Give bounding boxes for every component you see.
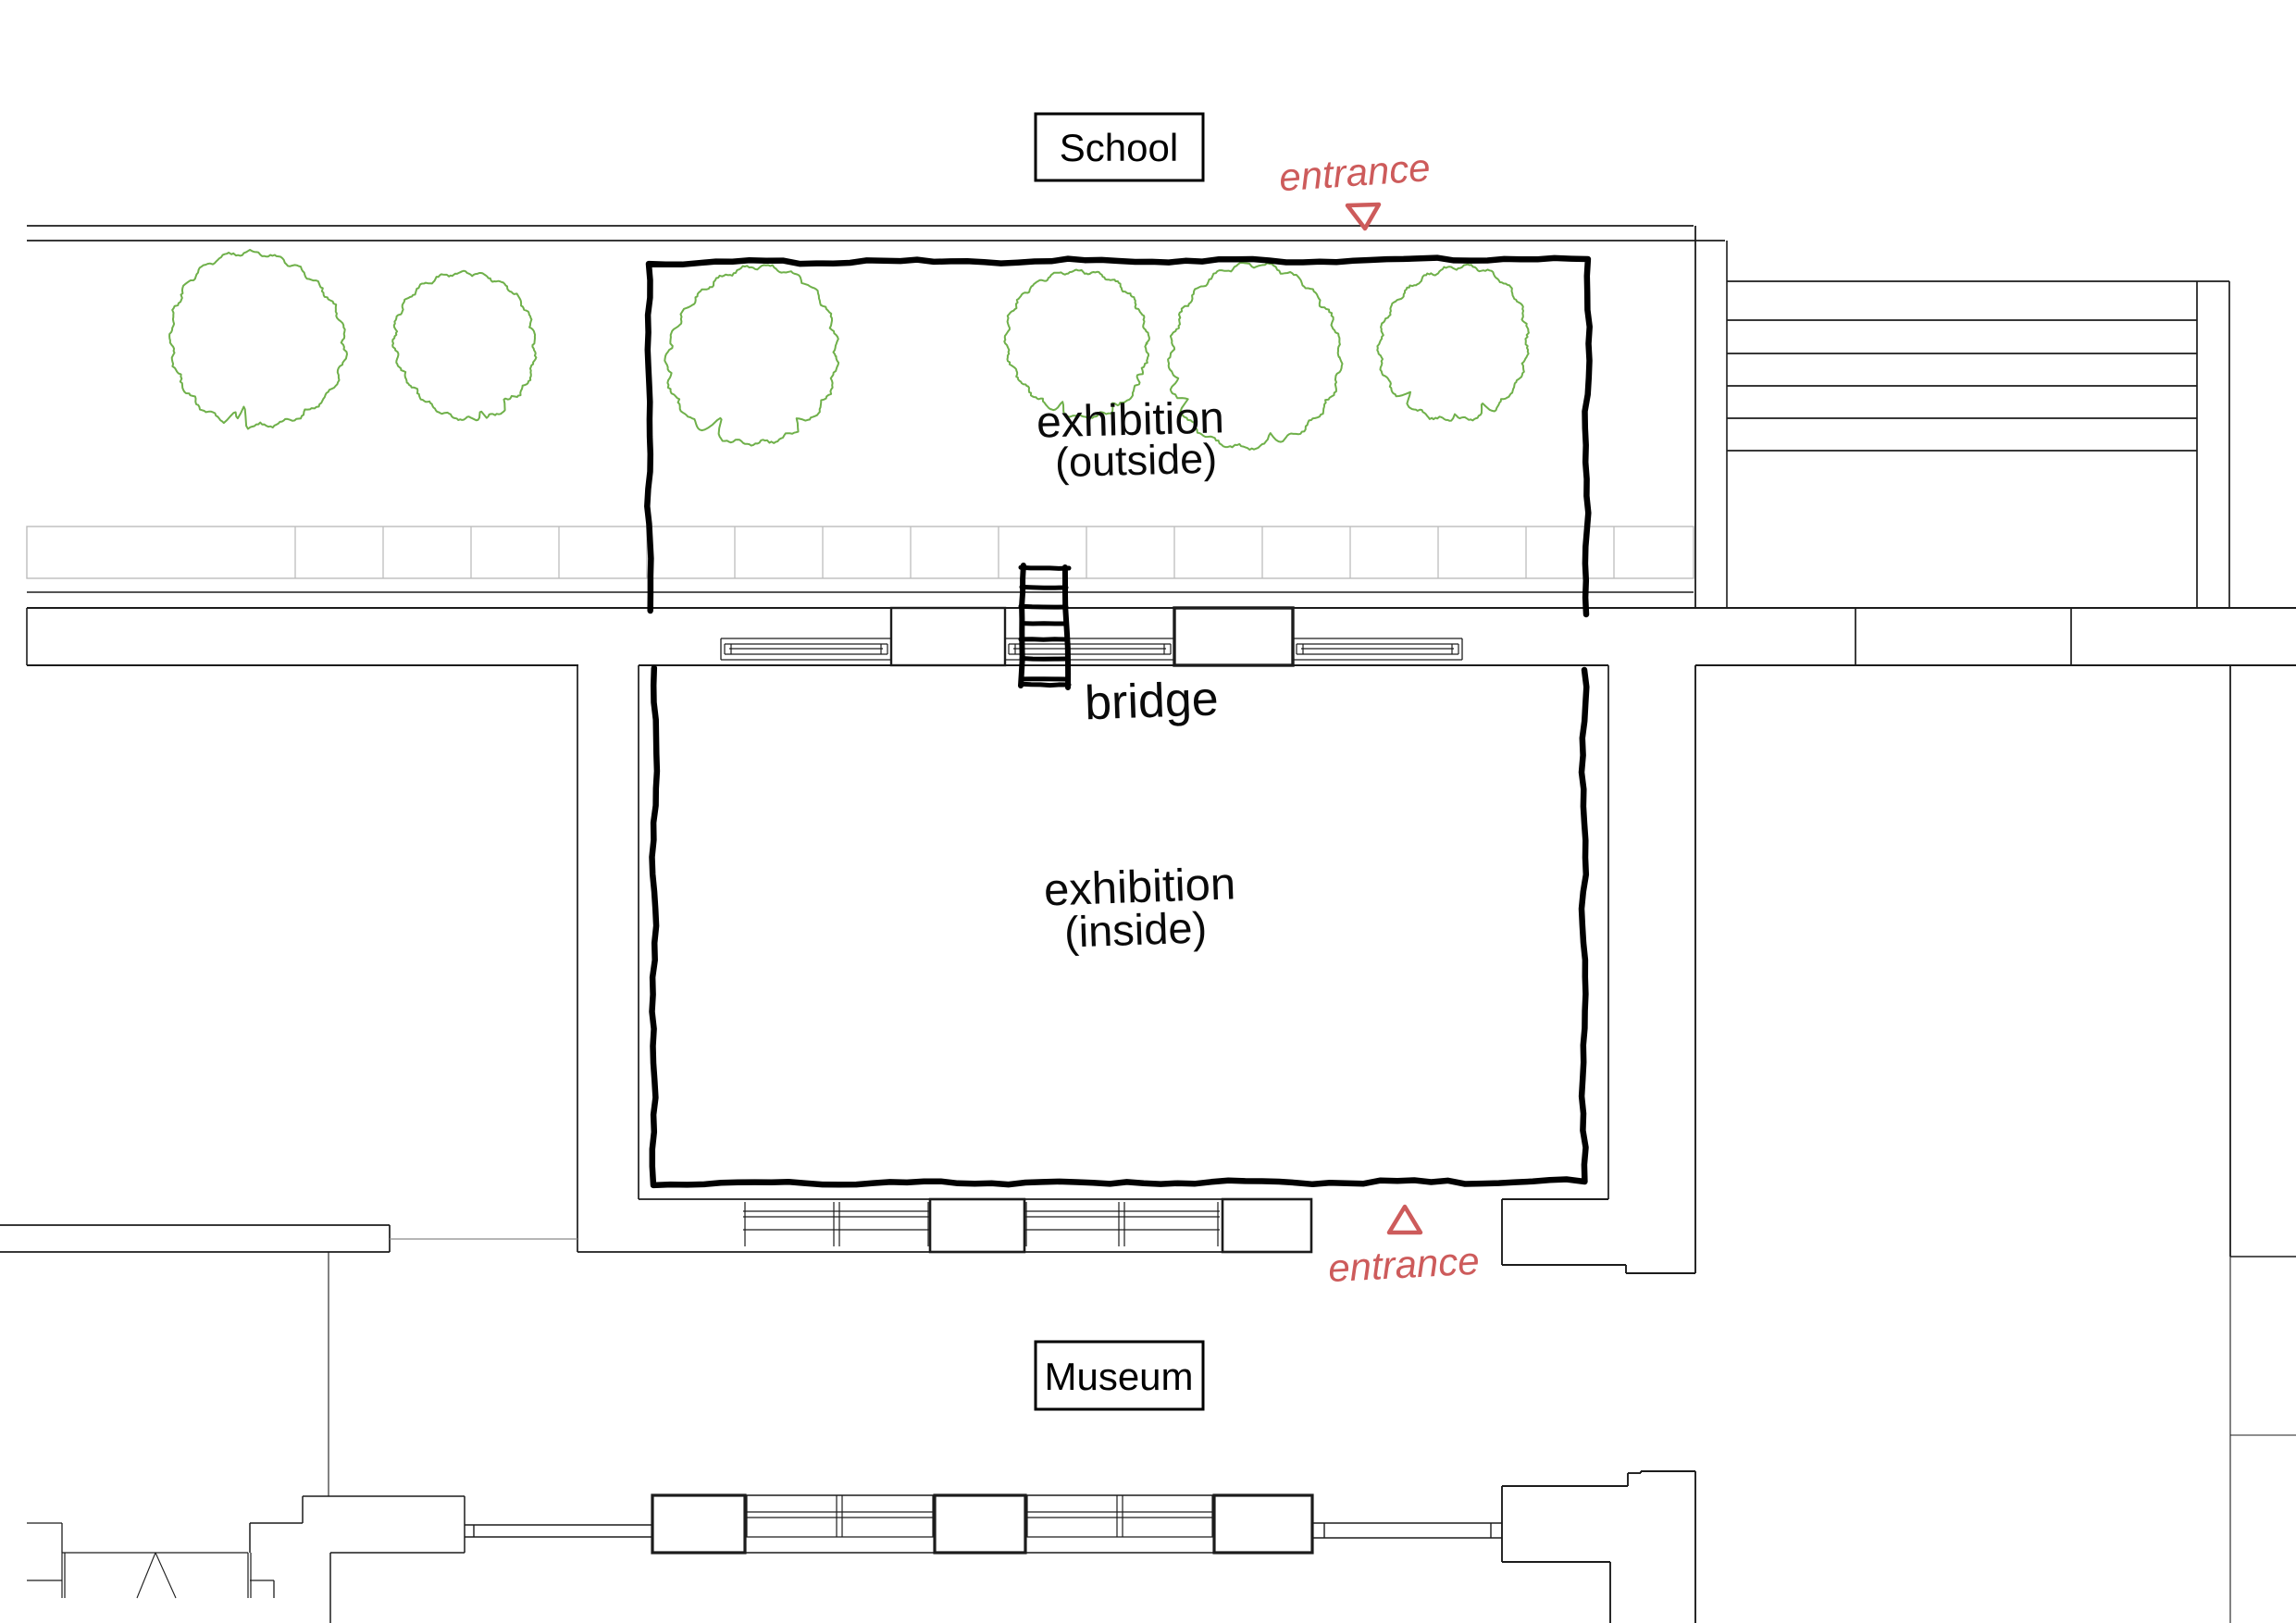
- svg-text:(outside): (outside): [1054, 435, 1217, 487]
- svg-text:School: School: [1060, 126, 1178, 169]
- svg-text:entrance: entrance: [1327, 1239, 1481, 1290]
- svg-text:bridge: bridge: [1084, 672, 1219, 730]
- svg-text:(inside): (inside): [1063, 902, 1208, 956]
- svg-text:Museum: Museum: [1044, 1355, 1193, 1398]
